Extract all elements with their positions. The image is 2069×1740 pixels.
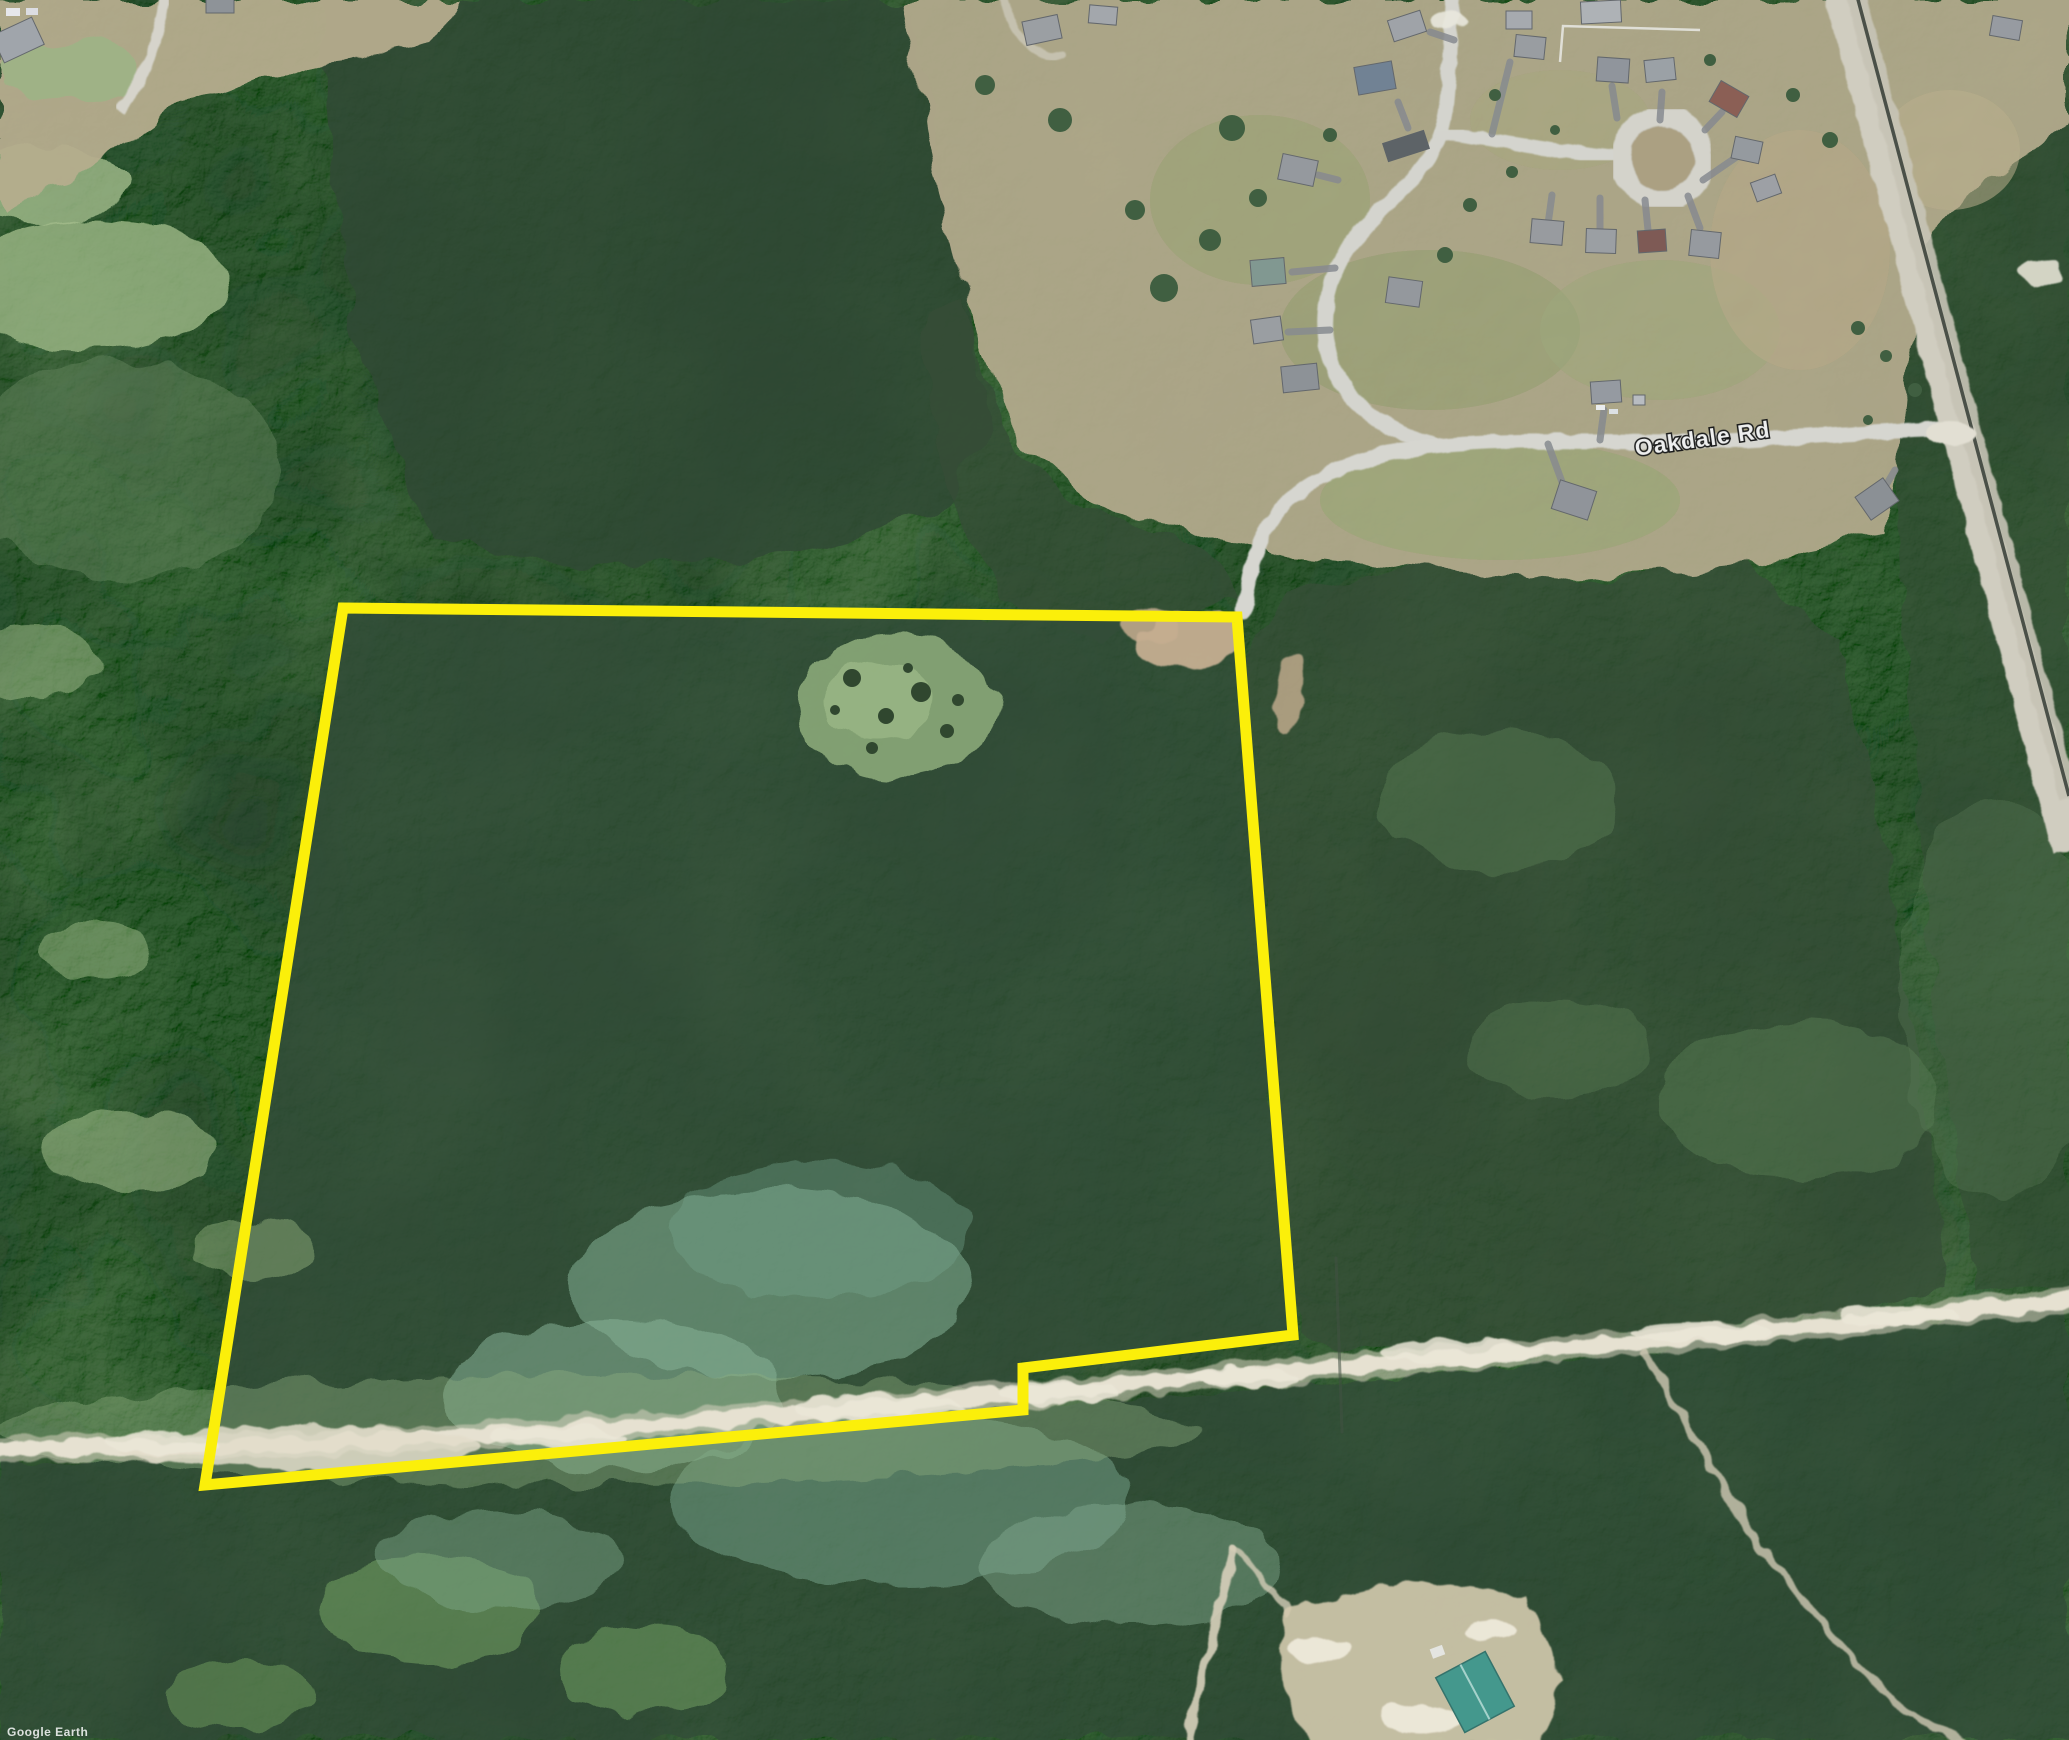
map-canvas[interactable]: Oakdale Rd Google Earth	[0, 0, 2069, 1740]
aerial-map[interactable]: Oakdale Rd Google Earth	[0, 0, 2069, 1740]
haze-overlay	[0, 0, 2069, 1740]
